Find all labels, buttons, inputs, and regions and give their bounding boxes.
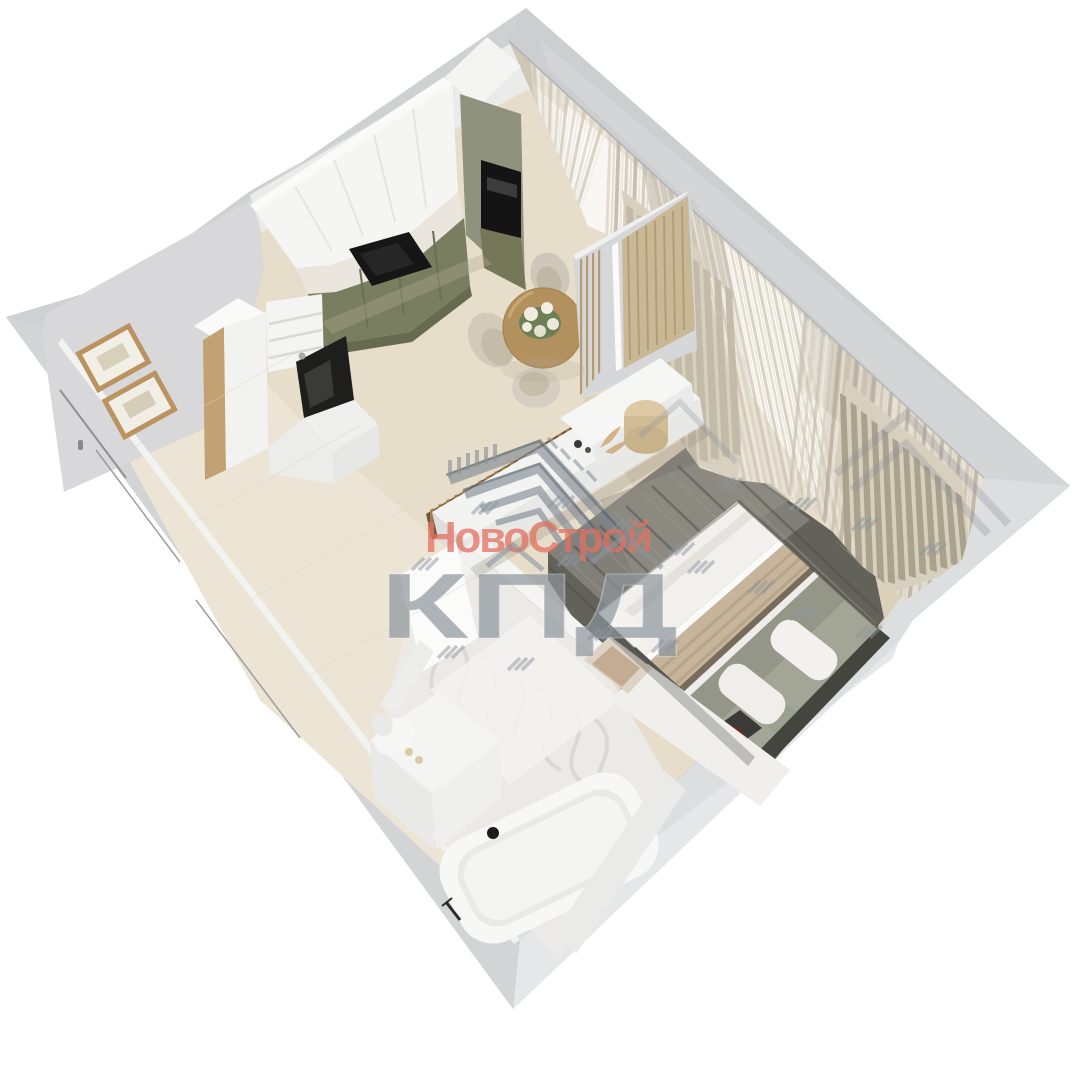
svg-text:КПД: КПД xyxy=(379,554,679,658)
